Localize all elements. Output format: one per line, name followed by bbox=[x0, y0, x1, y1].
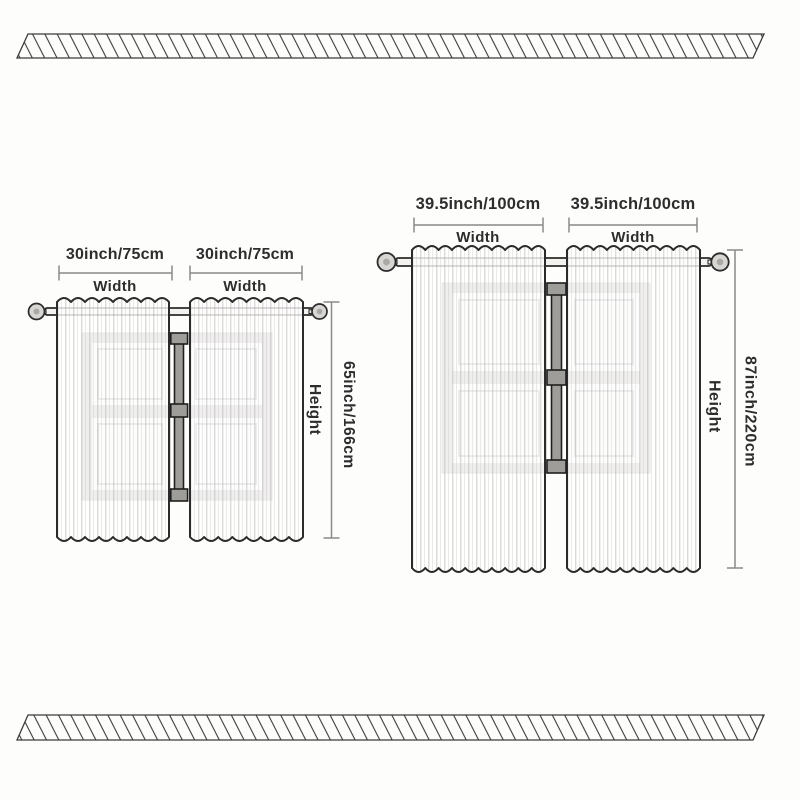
hatch-band-bottom bbox=[17, 715, 764, 740]
large-curtain-panel-right bbox=[567, 246, 700, 572]
large-width-label-left: 39.5inch/100cm bbox=[411, 195, 545, 213]
small-width-label-right: 30inch/75cm bbox=[187, 246, 303, 264]
small-width-label-left: 30inch/75cm bbox=[57, 246, 173, 264]
small-curtain-panel-right bbox=[190, 298, 303, 541]
small-window-mullion bbox=[171, 322, 190, 508]
large-width-caption-right: Width bbox=[566, 230, 700, 247]
small-height-label: 65inch/166cm bbox=[340, 361, 357, 469]
small-finial-right-dot bbox=[317, 309, 323, 315]
large-finial-left-dot bbox=[383, 259, 390, 266]
hatch-band-top bbox=[17, 34, 764, 58]
small-diagram bbox=[29, 266, 340, 542]
small-finial-left-dot bbox=[34, 309, 40, 315]
curtain-size-diagram: 30inch/75cm 30inch/75cm Width Width 65in… bbox=[0, 0, 800, 800]
large-finial-right-dot bbox=[717, 259, 724, 266]
large-diagram bbox=[378, 218, 744, 573]
diagram-graphics bbox=[0, 0, 800, 800]
small-height-caption: Height bbox=[306, 384, 323, 435]
small-height-dimension bbox=[324, 302, 340, 538]
large-curtain-panel-left bbox=[412, 246, 545, 572]
small-width-caption-right: Width bbox=[187, 279, 303, 296]
large-height-label: 87inch/220cm bbox=[741, 356, 759, 467]
small-curtain-panel-left bbox=[57, 298, 169, 541]
large-height-caption: Height bbox=[705, 380, 723, 433]
small-width-caption-left: Width bbox=[57, 279, 173, 296]
large-width-label-right: 39.5inch/100cm bbox=[566, 195, 700, 213]
large-window-mullion bbox=[547, 272, 567, 480]
large-width-caption-left: Width bbox=[411, 230, 545, 247]
